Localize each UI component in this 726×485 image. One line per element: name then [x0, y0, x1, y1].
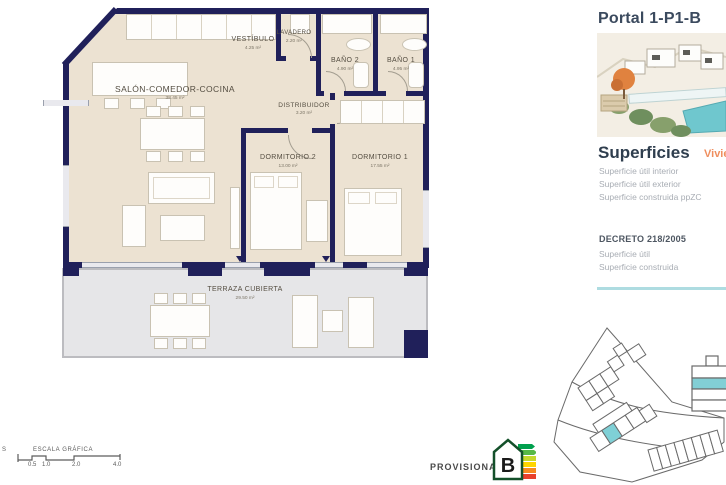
scale-tick-10: 1.0 [42, 462, 50, 468]
wall-lavadero-bottom-a [276, 56, 286, 61]
terrace-corner-block [404, 330, 428, 358]
lounger-2 [348, 297, 374, 348]
door-marker-1 [236, 256, 244, 262]
dining-chair-3 [190, 106, 205, 117]
wall-bano2-left [316, 8, 321, 96]
vivienda-tag: Vivie [704, 148, 726, 160]
coffee-table [160, 215, 205, 241]
decreto-row-util: Superficie útil [599, 249, 650, 259]
building-section-key [688, 352, 726, 414]
room-label-dorm1: DORMITORIO 1 17.55 m² [345, 154, 415, 170]
dorm1-pillow-2 [375, 192, 397, 204]
terrace-chair-2 [173, 293, 187, 304]
energy-rating-letter: B [501, 455, 515, 477]
superficie-row-construida: Superficie construida ppZC [599, 192, 702, 202]
room-label-lavadero: LAVADERO 2.20 m² [272, 30, 316, 45]
dining-chair-2 [168, 106, 183, 117]
room-label-terraza: TERRAZA CUBIERTA 29.50 m² [195, 286, 295, 302]
dorm1-pillow-1 [348, 192, 370, 204]
decreto-heading: DECRETO 218/2005 [599, 234, 686, 244]
bano1-sink [402, 38, 427, 51]
wall-dorm1-left-b [330, 124, 335, 268]
sideboard [122, 205, 146, 247]
terrace-chair-1 [154, 293, 168, 304]
window-right-dorm1 [423, 190, 429, 248]
terrace-table [150, 305, 210, 337]
window-left-1 [43, 100, 89, 106]
superficie-row-exterior: Superficie útil exterior [599, 179, 681, 189]
wall-dorm2-top-a [243, 128, 288, 133]
terrace-pier-3 [264, 268, 310, 276]
bano1-shower [380, 14, 427, 34]
scale-tick-40: 4.0 [113, 462, 121, 468]
dorm2-pillow-2 [278, 176, 298, 188]
room-label-dorm2: DORMITORIO 2 13.00 m² [253, 154, 323, 170]
dining-chair-6 [190, 151, 205, 162]
dorm2-pillow-1 [254, 176, 274, 188]
terrace-chair-5 [173, 338, 187, 349]
terrace-pier-2 [188, 268, 222, 276]
energy-rating-label: B [490, 436, 536, 482]
page: SALÓN-COMEDOR-COCINA 38.45 m² VESTÍBULO … [0, 0, 726, 485]
corner-chamfer [61, 6, 121, 68]
terrace-chair-4 [154, 338, 168, 349]
dorm2-dresser [306, 200, 328, 242]
project-illustration [597, 33, 726, 137]
bano2-shower [322, 14, 372, 34]
wall-salon-dorm2 [241, 128, 246, 268]
dining-chair-1 [146, 106, 161, 117]
wall-dorm1-left-a [330, 93, 335, 100]
wall-bano-divider [373, 8, 378, 96]
tv-unit [230, 187, 240, 249]
terrace-pier-1 [63, 268, 79, 276]
teal-divider [597, 287, 726, 290]
room-label-salon: SALÓN-COMEDOR-COCINA 38.45 m² [95, 84, 255, 102]
dorm1-wardrobe [340, 100, 425, 124]
scale-tick-05: 0.5 [28, 462, 36, 468]
window-left-2 [63, 165, 69, 227]
terrace-chair-6 [192, 338, 206, 349]
lounger-side-table [322, 310, 343, 332]
room-label-bano1: BAÑO 1 4.95 m² [378, 57, 424, 73]
wall-banos-bottom-c [406, 91, 429, 96]
scale-prefix: S [2, 447, 6, 453]
dining-chair-5 [168, 151, 183, 162]
dining-table [140, 118, 205, 150]
page-title: Portal 1-P1-B [598, 10, 701, 28]
room-label-bano2: BAÑO 2 4.90 m² [322, 57, 368, 73]
lounger-1 [292, 295, 318, 348]
terrace-pier-4 [404, 268, 428, 276]
decreto-row-construida: Superficie construida [599, 262, 678, 272]
room-label-distribuidor: DISTRIBUIDOR 3.20 m² [274, 102, 334, 118]
bano2-sink [346, 38, 371, 51]
wall-dorm2-top-b [312, 128, 335, 133]
wall-banos-bottom-b [344, 91, 386, 96]
superficie-row-interior: Superficie útil interior [599, 166, 678, 176]
scale-tick-20: 2.0 [72, 462, 80, 468]
door-marker-2 [322, 256, 330, 262]
dining-chair-4 [146, 151, 161, 162]
sofa-seat [153, 177, 210, 199]
superficies-heading: Superficies [598, 143, 690, 163]
wall-banos-bottom-a [316, 91, 324, 96]
